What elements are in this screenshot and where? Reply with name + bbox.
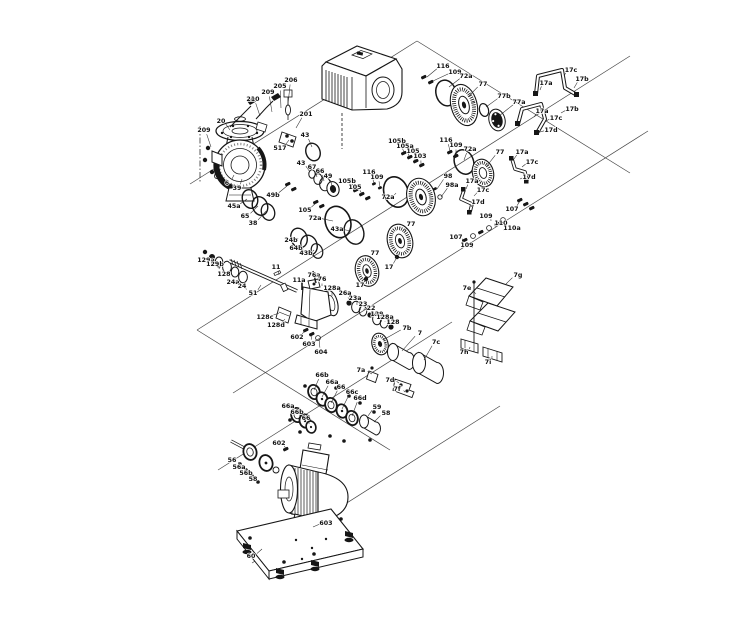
- part-label-24b: 24b: [284, 237, 298, 244]
- part-label-43a: 43a: [330, 226, 343, 233]
- part-label-7d: 7d: [386, 377, 395, 384]
- coupling-hub: [486, 107, 507, 132]
- part-label-77: 77: [496, 149, 505, 156]
- leader-line: [374, 416, 380, 422]
- part-label-128: 128: [386, 319, 399, 326]
- part-label-51: 51: [249, 290, 258, 297]
- leader-line: [256, 103, 260, 116]
- part-label-7b: 7b: [403, 325, 412, 332]
- part-label-17d: 17d: [522, 174, 535, 181]
- part-label-602: 602: [272, 440, 285, 447]
- part-label-17a: 17a: [515, 149, 528, 156]
- part-label-17a: 17a: [539, 80, 552, 87]
- leader-line: [486, 98, 498, 107]
- leader-line: [506, 278, 512, 284]
- part-label-209: 209: [197, 127, 210, 134]
- part-label-17c: 17c: [565, 67, 578, 74]
- part-label-7i: 7i: [485, 359, 492, 366]
- part-label-128: 128: [217, 271, 230, 278]
- leader-line: [322, 219, 333, 221]
- part-label-210: 210: [246, 96, 260, 103]
- part-label-56: 56: [228, 457, 237, 464]
- part-label-66b: 66b: [315, 372, 329, 379]
- part-label-7: 7: [418, 330, 422, 337]
- part-label-201: 201: [299, 111, 312, 118]
- part-label-109: 109: [370, 174, 383, 181]
- leader-line: [499, 105, 513, 116]
- leader-line: [258, 285, 261, 290]
- part-label-206: 206: [284, 77, 298, 84]
- part-label-72a: 72a: [308, 215, 321, 222]
- part-label-17: 17: [385, 264, 394, 271]
- part-label-109: 109: [449, 142, 462, 149]
- part-label-17b: 17b: [565, 106, 579, 113]
- part-label-11: 11: [272, 264, 281, 271]
- separation-lines: [190, 41, 648, 563]
- part-label-603: 603: [302, 341, 315, 348]
- leader-line: [368, 410, 372, 416]
- part-label-7c: 7c: [432, 339, 440, 346]
- part-label-604: 604: [314, 349, 328, 356]
- leader-line: [383, 330, 401, 340]
- part-label-59: 59: [373, 404, 382, 411]
- part-label-66: 66: [337, 384, 346, 391]
- part-label-49b: 49b: [266, 192, 280, 199]
- part-label-6: 6: [225, 180, 230, 187]
- base-plate: [237, 509, 363, 579]
- part-label-603: 603: [319, 520, 332, 527]
- part-label-43b: 43b: [299, 250, 313, 257]
- part-label-105: 105: [298, 207, 311, 214]
- part-label-72a: 72a: [463, 146, 476, 153]
- part-label-105: 105: [348, 184, 361, 191]
- leader-line: [311, 203, 316, 208]
- part-label-7f: 7f: [393, 386, 400, 393]
- pipe-17-fourth: [461, 187, 472, 215]
- part-label-128c: 128c: [257, 314, 274, 321]
- part-label-110a: 110a: [503, 225, 520, 232]
- part-label-17: 17: [356, 282, 365, 289]
- part-label-38: 38: [249, 220, 258, 227]
- leader-line: [464, 153, 467, 160]
- leader-line: [402, 336, 415, 351]
- part-label-17b: 17b: [575, 76, 589, 83]
- leader-line: [441, 188, 447, 197]
- exploded-parts-diagram: Exploded view technical drawing of a cen…: [0, 0, 752, 632]
- part-label-209: 209: [261, 89, 274, 96]
- part-label-77: 77: [407, 221, 416, 228]
- bearing-housing: [276, 271, 341, 329]
- part-label-39: 39: [233, 185, 242, 192]
- leader-line: [394, 193, 396, 195]
- part-label-98a: 98a: [445, 182, 458, 189]
- part-label-107: 107: [505, 206, 518, 213]
- part-label-58: 58: [249, 476, 258, 483]
- part-label-17d: 17d: [544, 127, 557, 134]
- part-label-128d: 128d: [267, 322, 285, 329]
- part-label-103: 103: [413, 153, 426, 160]
- part-label-11a: 11a: [292, 277, 305, 284]
- leader-line: [313, 250, 314, 251]
- leader-line: [279, 186, 287, 193]
- part-label-65: 65: [241, 213, 250, 220]
- part-label-66d: 66d: [353, 395, 366, 402]
- part-label-72a: 72a: [381, 194, 394, 201]
- part-label-17a: 17a: [465, 178, 478, 185]
- part-label-98: 98: [444, 173, 453, 180]
- leader-line: [574, 82, 577, 88]
- part-label-72a: 72a: [459, 73, 472, 80]
- part-label-77: 77: [371, 250, 380, 257]
- part-label-77a: 77a: [512, 99, 525, 106]
- part-label-17c: 17c: [526, 159, 539, 166]
- part-label-109: 109: [460, 242, 473, 249]
- part-label-49: 49: [324, 173, 333, 180]
- leader-line: [379, 181, 380, 187]
- leader-line: [466, 185, 468, 189]
- part-label-109: 109: [479, 213, 492, 220]
- part-label-43: 43: [301, 132, 310, 139]
- part-label-7e: 7e: [463, 285, 472, 292]
- part-label-7a: 7a: [357, 367, 366, 374]
- leader-line: [207, 134, 211, 147]
- leader-line: [296, 118, 302, 128]
- part-label-17c: 17c: [550, 115, 563, 122]
- part-label-76: 76: [318, 276, 327, 283]
- part-label-129b: 129b: [206, 261, 224, 268]
- part-label-7h: 7h: [460, 349, 469, 356]
- part-label-58: 58: [382, 410, 391, 417]
- part-label-77b: 77b: [497, 93, 511, 100]
- part-label-77: 77: [479, 81, 488, 88]
- part-label-17d: 17d: [471, 199, 484, 206]
- part-label-602: 602: [290, 334, 303, 341]
- leader-line: [437, 179, 444, 189]
- part-label-17a: 17a: [535, 108, 548, 115]
- part-label-7g: 7g: [514, 272, 523, 279]
- part-label-205: 205: [273, 83, 286, 90]
- part-label-517: 517: [273, 145, 286, 152]
- part-label-20: 20: [217, 118, 226, 125]
- part-label-24: 24: [238, 283, 247, 290]
- part-label-43: 43: [297, 160, 306, 167]
- part-label-107: 107: [449, 234, 462, 241]
- leader-line: [280, 91, 281, 109]
- part-label-60: 60: [247, 553, 256, 560]
- part-label-17c: 17c: [477, 187, 490, 194]
- part-label-45a: 45a: [227, 203, 240, 210]
- part-label-66: 66: [302, 415, 311, 422]
- motor-control-box: [322, 46, 402, 110]
